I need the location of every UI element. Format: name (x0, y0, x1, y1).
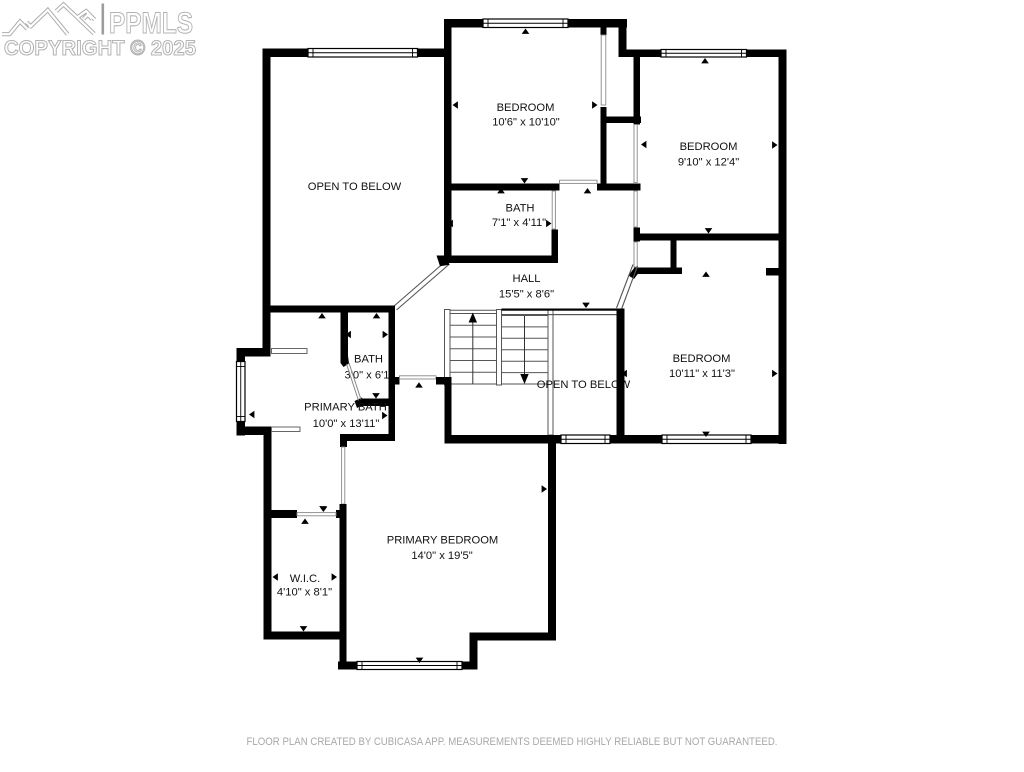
svg-text:BATH: BATH (354, 354, 383, 366)
svg-text:14'0" x 19'5": 14'0" x 19'5" (411, 550, 472, 562)
svg-text:7'1" x 4'11": 7'1" x 4'11" (492, 217, 546, 229)
svg-text:9'10" x 12'4": 9'10" x 12'4" (678, 157, 739, 169)
svg-text:BEDROOM: BEDROOM (673, 353, 731, 365)
svg-text:HALL: HALL (513, 273, 541, 285)
svg-text:W.I.C.: W.I.C. (290, 573, 320, 585)
svg-text:10'0" x 13'11": 10'0" x 13'11" (313, 418, 380, 430)
svg-text:OPEN TO BELOW: OPEN TO BELOW (308, 181, 402, 193)
svg-text:4'10" x 8'1": 4'10" x 8'1" (277, 587, 332, 599)
svg-text:BEDROOM: BEDROOM (680, 141, 738, 153)
svg-text:COPYRIGHT © 2025: COPYRIGHT © 2025 (4, 36, 196, 60)
svg-text:BATH: BATH (505, 203, 534, 215)
svg-text:BEDROOM: BEDROOM (497, 102, 555, 114)
svg-text:PRIMARY BEDROOM: PRIMARY BEDROOM (387, 535, 498, 547)
svg-text:10'6" x 10'10": 10'6" x 10'10" (492, 117, 560, 129)
svg-text:15'5" x 8'6": 15'5" x 8'6" (499, 289, 554, 301)
svg-text:FLOOR PLAN CREATED BY CUBICASA: FLOOR PLAN CREATED BY CUBICASA APP. MEAS… (247, 736, 778, 748)
svg-text:PRIMARY BATH: PRIMARY BATH (304, 402, 387, 414)
svg-text:10'11" x 11'3": 10'11" x 11'3" (669, 368, 735, 380)
